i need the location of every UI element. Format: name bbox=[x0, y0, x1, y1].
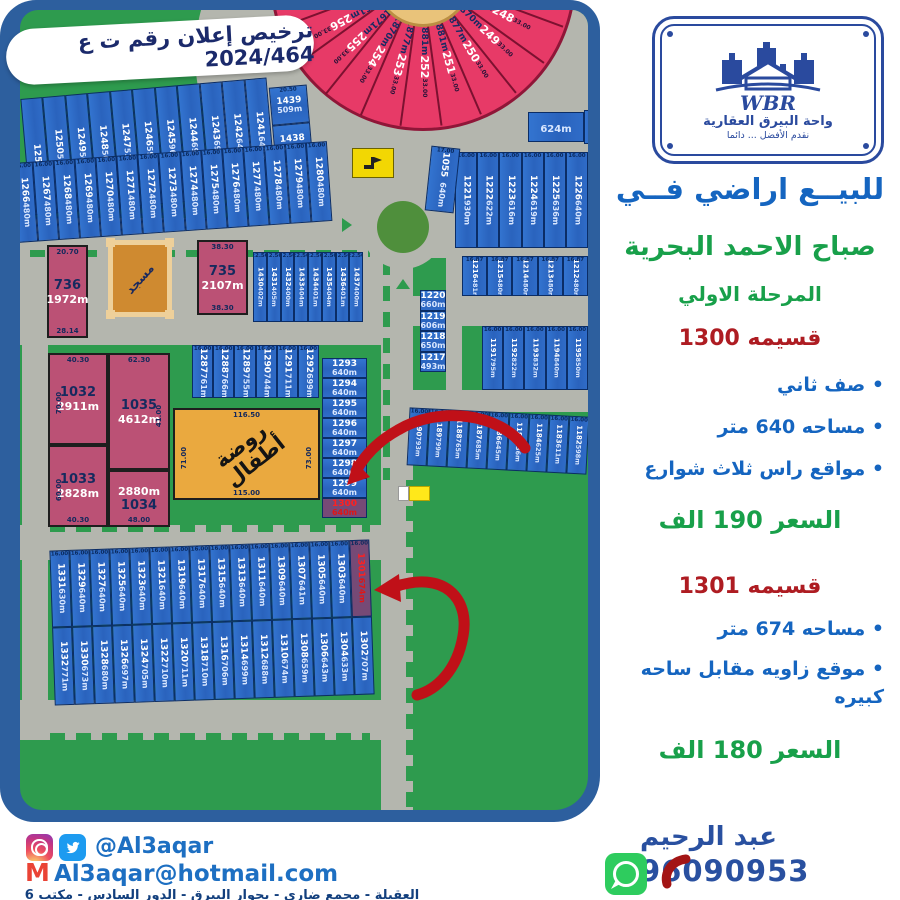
plot-row-1430-1437: 22.501430402m22.501431405m22.501432400m2… bbox=[253, 252, 363, 322]
plot-1034: 2880m 1034 48.00 bbox=[108, 470, 170, 527]
plot-1327: 16.001327640m bbox=[89, 549, 112, 627]
plot-1213: 16.871213480m bbox=[538, 256, 563, 296]
plot-1212: 16.871212480m bbox=[563, 256, 588, 296]
dim-label: 41.00 bbox=[155, 404, 163, 426]
logo-company-name: واحة البيرق العقارية bbox=[703, 114, 833, 129]
plot-1226: 16.001226640m bbox=[566, 152, 588, 248]
plot-1217: 1217493m bbox=[420, 352, 446, 373]
plot-1222: 16.001222622m bbox=[477, 152, 499, 248]
plot-area: 1972m bbox=[46, 293, 88, 306]
roundabout-triangle bbox=[342, 218, 359, 232]
logo-content: WBR واحة البيرق العقارية نقدم الأفضل ...… bbox=[660, 24, 876, 156]
plot-1290: 16.001290744m bbox=[256, 345, 277, 398]
plot-area: 624m bbox=[540, 124, 571, 135]
logo-slogan: نقدم الأفضل ... دائما bbox=[727, 130, 809, 141]
dim-label: 73.00 bbox=[305, 447, 313, 469]
plot-row-1182-1190: 16.001190793m16.001189799m16.001188765m1… bbox=[407, 407, 588, 474]
plot-1219: 1219606m bbox=[420, 311, 446, 332]
plot-1304: 1304633m bbox=[332, 617, 355, 696]
plot-row-1302-1332: 1332771m1330673m1328680m1326697m1324705m… bbox=[52, 616, 375, 705]
plot-1430: 22.501430402m bbox=[253, 252, 267, 322]
plot-1322: 1322710m bbox=[152, 623, 175, 702]
plot-1225: 16.001225636m bbox=[544, 152, 566, 248]
dim-label: 71.00 bbox=[180, 447, 188, 469]
plot-1305: 16.001305640m bbox=[309, 541, 332, 619]
plot-1220: 1220660m bbox=[420, 290, 446, 311]
plot-area: 4612m bbox=[118, 413, 160, 426]
dim-label: 60.00 bbox=[55, 479, 63, 501]
plot-1328: 1328680m bbox=[92, 625, 115, 704]
plot-1193: 16.001193832m bbox=[524, 326, 545, 390]
dim-label: 48.00 bbox=[128, 516, 150, 524]
plot-1224: 16.001224619m bbox=[522, 152, 544, 248]
phone-icon bbox=[655, 852, 693, 894]
logo-wbr: WBR bbox=[740, 93, 796, 113]
plot-1329: 16.001329640m bbox=[69, 549, 92, 627]
plot-1032: 40.30 70.00 1032 2911m bbox=[48, 353, 108, 445]
plot-1306: 1306643m bbox=[312, 618, 335, 697]
plot-1216: 16.871216481m bbox=[462, 256, 487, 296]
plot-1320: 1320711m bbox=[172, 623, 195, 702]
plot-1325: 16.001325640m bbox=[109, 548, 132, 626]
price-1301: السعر 180 الف bbox=[605, 736, 895, 764]
plot-1312: 1312688m bbox=[252, 620, 275, 699]
bullet-1300-position: مواقع راس ثلاث شوارع bbox=[612, 456, 884, 484]
plot-1330: 1330673m bbox=[72, 626, 95, 705]
twitter-icon bbox=[59, 834, 86, 861]
plot-1431: 22.501431405m bbox=[267, 252, 281, 322]
marker-yellow bbox=[409, 486, 430, 501]
plot-1182: 16.001182598m bbox=[566, 416, 588, 475]
plot-number: 986 bbox=[588, 120, 589, 135]
plot-1288: 16.001288766m bbox=[213, 345, 234, 398]
plot-1223: 16.001223616m bbox=[499, 152, 521, 248]
planter-strip bbox=[406, 480, 413, 810]
ad-title: للبيــع اراضي فــي bbox=[605, 172, 895, 206]
plot-1309: 16.001309640m bbox=[269, 542, 292, 620]
mosque-post bbox=[106, 310, 115, 319]
plot-1195: 16.001195850m bbox=[567, 326, 588, 390]
plot-1194: 16.001194840m bbox=[546, 326, 567, 390]
dim-label: 38.30 bbox=[211, 243, 233, 251]
plot-1307: 16.001307641m bbox=[289, 542, 312, 620]
plot-624m: 624m bbox=[528, 112, 584, 142]
plot-1324: 1324705m bbox=[132, 624, 155, 703]
plot-1293: 1293640m bbox=[322, 358, 367, 378]
plot-number: 1032 bbox=[60, 385, 96, 400]
whatsapp-icon bbox=[605, 853, 647, 895]
plot-1295: 1295640m bbox=[322, 398, 367, 418]
planter-strip bbox=[383, 260, 390, 480]
plot-1214: 16.871214480m bbox=[512, 256, 537, 296]
plot-1432: 22.501432400m bbox=[281, 252, 295, 322]
plot-1315: 16.001315640m bbox=[209, 544, 232, 622]
plot-row-1212-1216: 16.871216481m16.871215480m16.871214480m1… bbox=[462, 256, 588, 296]
plot-736: 20.70 736 1972m 28.14 bbox=[47, 245, 88, 338]
plot-1218: 1218650m bbox=[420, 331, 446, 352]
agent-name: عبد الرحيم bbox=[640, 822, 880, 852]
plot-1332: 1332771m bbox=[52, 627, 75, 706]
plot-1296: 1296640m bbox=[322, 418, 367, 438]
instagram-icon bbox=[26, 834, 53, 861]
plot-1311: 16.001311640m bbox=[249, 543, 272, 621]
roadside-sign bbox=[352, 148, 394, 178]
plot-1439: 20.501439509m bbox=[269, 84, 310, 125]
kindergarten-label: روضة أطفال bbox=[208, 417, 286, 491]
email-address: Al3aqar@hotmail.com bbox=[54, 861, 338, 887]
roundabout-triangle bbox=[396, 272, 410, 289]
ad-phase: المرحلة الاولي bbox=[605, 282, 895, 306]
plot-1298: 1298640m bbox=[322, 458, 367, 478]
plot-row-1221-1226: 16.001221930m16.001222622m16.001223616m1… bbox=[455, 152, 588, 248]
office-address: العقيلة - مجمع ضاري - بجوار البيرق - الد… bbox=[4, 888, 440, 900]
road-right-vertical bbox=[446, 248, 462, 412]
dim-label: 28.14 bbox=[56, 327, 78, 335]
plot-1299: 1299640m bbox=[322, 478, 367, 498]
mosque-post bbox=[165, 238, 174, 247]
plot-number: 1055 bbox=[438, 152, 451, 178]
plot-1035: 62.30 41.00 1035 4612m bbox=[108, 353, 170, 470]
plot-1215: 16.871215480m bbox=[487, 256, 512, 296]
plot-number: 1033 bbox=[60, 472, 96, 487]
mosque-plot: مسجد bbox=[108, 240, 172, 317]
section-heading-1300: قسيمه 1300 bbox=[605, 326, 895, 351]
bullet-1301-area: مساحه 674 متر bbox=[612, 616, 884, 644]
plot-1314: 1314699m bbox=[232, 621, 255, 700]
plot-number: 1034 bbox=[121, 498, 157, 513]
sign-glyph-icon bbox=[362, 155, 384, 171]
plot-row-1287-1292: 16.001287761m16.001288766m16.001289755m1… bbox=[192, 345, 319, 398]
plot-number: 1035 bbox=[121, 398, 157, 413]
dim-label: 40.30 bbox=[67, 356, 89, 364]
plot-1310: 1310674m bbox=[272, 619, 295, 698]
bottom-plot-block: 16.001331630m16.001329640m16.001327640m1… bbox=[49, 539, 374, 705]
plot-1289: 16.001289755m bbox=[234, 345, 255, 398]
price-1300: السعر 190 الف bbox=[605, 506, 895, 534]
plot-1437: 22.501437400m bbox=[349, 252, 363, 322]
plot-row-1191-1195: 16.001191795m16.001192822m16.001193832m1… bbox=[482, 326, 588, 390]
road-marker bbox=[398, 486, 430, 499]
mosque-label: مسجد bbox=[123, 261, 157, 297]
plot-1297: 1297640m bbox=[322, 438, 367, 458]
dim-label: 40.30 bbox=[67, 516, 89, 524]
plot-1291: 16.001291711m bbox=[277, 345, 298, 398]
plot-1323: 16.001323640m bbox=[129, 547, 152, 625]
mosque-post bbox=[106, 238, 115, 247]
ad-location: صباح الاحمد البحرية bbox=[605, 232, 895, 262]
plot-1191: 16.001191795m bbox=[482, 326, 503, 390]
plot-area: 2911m bbox=[57, 400, 99, 413]
plot-1302: 1302707m bbox=[352, 616, 375, 695]
dim-label: 70.00 bbox=[55, 392, 63, 414]
social-handle: @Al3aqar bbox=[95, 834, 213, 859]
company-logo-plaque: WBR واحة البيرق العقارية نقدم الأفضل ...… bbox=[652, 16, 884, 164]
plot-number: 736 bbox=[54, 278, 81, 293]
plot-1192: 16.001192822m bbox=[503, 326, 524, 390]
plot-1303: 16.001303640m bbox=[329, 540, 352, 618]
kindergarten-plot: 116.50 71.00 115.00 73.00 روضة أطفال bbox=[173, 408, 320, 500]
bullet-1300-row: صف ثاني bbox=[612, 372, 884, 400]
dim-label: 62.30 bbox=[128, 356, 150, 364]
plot-1318: 1318710m bbox=[192, 622, 215, 701]
plot-1326: 1326697m bbox=[112, 625, 135, 704]
plot-1321: 16.001321640m bbox=[149, 546, 172, 624]
map-area: 1868m24833.001870m24933.001877m25033.001… bbox=[20, 10, 588, 810]
plot-1433: 22.501433404m bbox=[294, 252, 308, 322]
plot-row-1301-1331: 16.001331630m16.001329640m16.001327640m1… bbox=[49, 539, 371, 627]
plot-1317: 16.001317640m bbox=[189, 545, 212, 623]
bullet-1300-area: مساحه 640 متر bbox=[612, 414, 884, 442]
plot-735: 38.30 735 2107m 38.30 bbox=[197, 240, 248, 315]
plot-1294: 1294640m bbox=[322, 378, 367, 398]
roundabout-island bbox=[377, 201, 429, 253]
gmail-icon: M bbox=[25, 860, 50, 885]
dim-label: 20.70 bbox=[56, 248, 78, 256]
dim-label: 38.30 bbox=[211, 304, 233, 312]
plot-1300: 1300640m bbox=[322, 498, 367, 518]
plot-column-1217-1220: 1220660m1219606m1218650m1217493m bbox=[420, 290, 446, 372]
bullet-1301-position: موقع زاويه مقابل ساحه كبيره bbox=[612, 656, 884, 711]
plot-1319: 16.001319640m bbox=[169, 546, 192, 624]
plot-1331: 16.001331630m bbox=[49, 550, 72, 628]
plot-1308: 1308659m bbox=[292, 619, 315, 698]
plot-1436: 22.501436401m bbox=[336, 252, 350, 322]
plot-area: 2107m bbox=[201, 279, 243, 292]
section-heading-1301: قسيمه 1301 bbox=[605, 574, 895, 599]
plot-area: 2828m bbox=[57, 487, 99, 500]
plot-1292: 16.001292699m bbox=[298, 345, 319, 398]
plot-1316: 1316706m bbox=[212, 621, 235, 700]
castle-house-icon bbox=[708, 40, 828, 92]
plot-1435: 22.501435404m bbox=[322, 252, 336, 322]
plot-1434: 22.501434401m bbox=[308, 252, 322, 322]
marker-white bbox=[398, 486, 409, 501]
plot-column-1293-1300: 1293640m1294640m1295640m1296640m1297640m… bbox=[322, 358, 367, 518]
plot-area: 640m bbox=[436, 182, 448, 208]
planter-strip bbox=[50, 733, 370, 740]
subdivision-map: 1868m24833.001870m24933.001877m25033.001… bbox=[0, 0, 600, 822]
mosque-post bbox=[165, 310, 174, 319]
flyer-canvas: 1868m24833.001870m24933.001877m25033.001… bbox=[0, 0, 900, 900]
plot-986: 986 bbox=[584, 110, 588, 144]
plot-area: 2880m bbox=[118, 485, 160, 498]
plot-number: 735 bbox=[209, 264, 236, 279]
plot-1301: 16.001301674m bbox=[349, 539, 372, 617]
plot-1313: 16.001313640m bbox=[229, 544, 252, 622]
plot-1287: 16.001287761m bbox=[192, 345, 213, 398]
plot-1033: 60.00 1033 2828m 40.30 bbox=[48, 445, 108, 527]
